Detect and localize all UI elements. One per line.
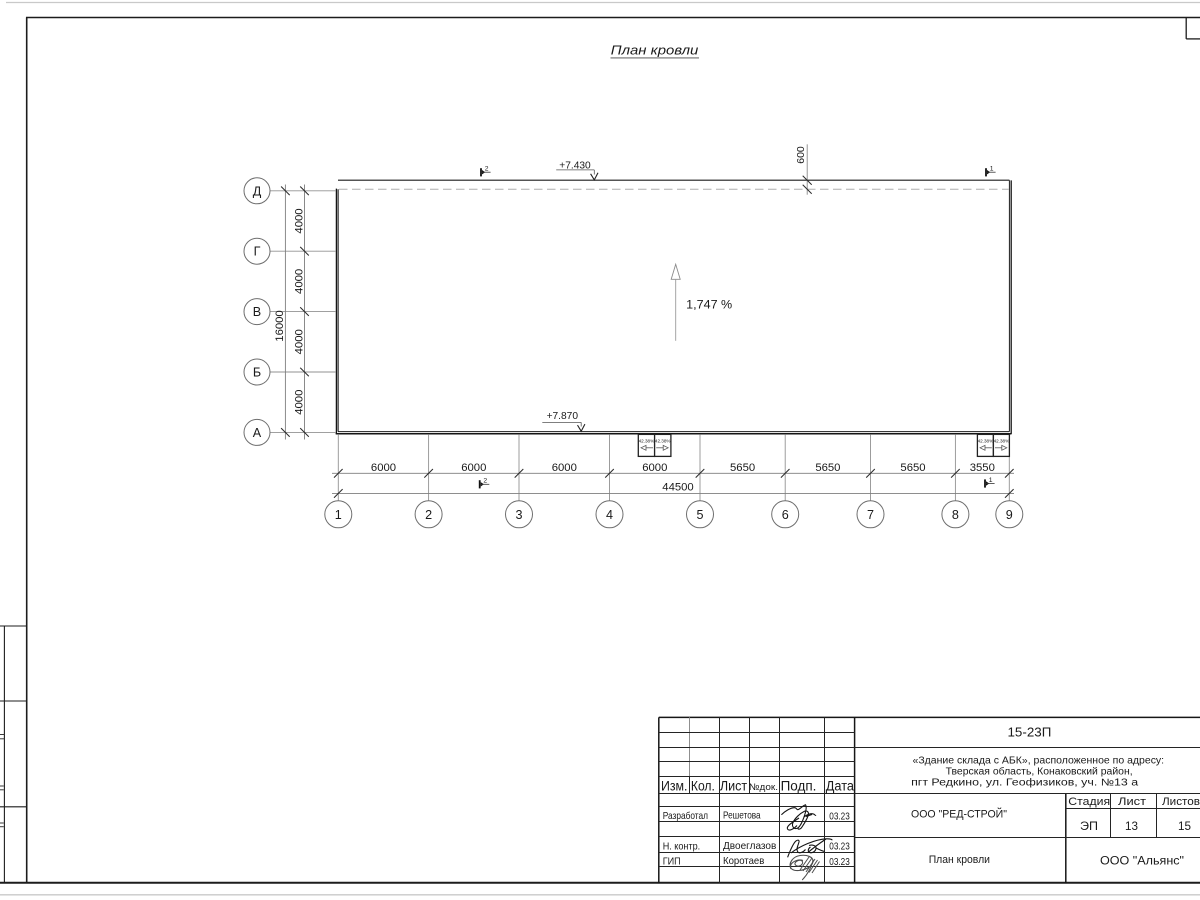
svg-text:В: В: [253, 305, 261, 319]
svg-text:16000: 16000: [274, 310, 286, 341]
svg-text:Решетова: Решетова: [723, 811, 761, 822]
svg-text:2: 2: [483, 478, 487, 485]
svg-text:пгт Редкино, ул. Геофизиков, у: пгт Редкино, ул. Геофизиков, уч. №13 а: [911, 778, 1139, 789]
svg-text:Лист: Лист: [720, 778, 747, 793]
svg-text:1: 1: [335, 508, 342, 522]
svg-text:Дата: Дата: [826, 778, 855, 793]
svg-text:5650: 5650: [900, 462, 925, 474]
svg-text:42.38%: 42.38%: [978, 439, 994, 444]
svg-text:Двоеглазов: Двоеглазов: [723, 841, 777, 852]
svg-text:2: 2: [485, 166, 489, 173]
svg-text:5: 5: [696, 508, 703, 522]
svg-text:42.38%: 42.38%: [639, 439, 655, 444]
svg-text:Лист: Лист: [1118, 796, 1146, 808]
svg-text:4000: 4000: [293, 390, 305, 415]
svg-text:Разработал: Разработал: [663, 810, 708, 822]
svg-text:Листов: Листов: [1162, 796, 1200, 808]
svg-text:42.38%: 42.38%: [994, 439, 1010, 444]
svg-text:4000: 4000: [293, 208, 305, 233]
svg-text:5650: 5650: [730, 462, 755, 474]
svg-text:6000: 6000: [371, 462, 396, 474]
svg-text:Тверская область, Конаковский: Тверская область, Конаковский район,: [946, 767, 1133, 778]
svg-text:План кровли: План кровли: [611, 42, 699, 57]
svg-text:ООО "РЕД-СТРОЙ": ООО "РЕД-СТРОЙ": [911, 807, 1007, 820]
svg-text:ООО "Альянс": ООО "Альянс": [1100, 853, 1184, 867]
svg-text:3: 3: [515, 508, 522, 522]
svg-text:15-23П: 15-23П: [1008, 725, 1052, 739]
svg-text:Г: Г: [254, 245, 261, 259]
svg-text:1: 1: [990, 166, 994, 173]
svg-text:А: А: [253, 426, 262, 440]
svg-text:ЭП: ЭП: [1080, 819, 1098, 833]
svg-text:42.38%: 42.38%: [655, 439, 671, 444]
svg-text:4: 4: [606, 508, 613, 522]
svg-text:2: 2: [425, 508, 432, 522]
svg-text:«Здание склада с АБК», располо: «Здание склада с АБК», расположенное по …: [913, 755, 1165, 766]
svg-text:3550: 3550: [970, 462, 995, 474]
svg-text:8: 8: [952, 508, 959, 522]
svg-text:600: 600: [795, 146, 807, 164]
svg-text:Изм.: Изм.: [661, 778, 688, 793]
svg-text:6: 6: [782, 508, 789, 522]
svg-text:4000: 4000: [293, 269, 305, 294]
svg-text:03.23: 03.23: [829, 812, 850, 823]
svg-text:9: 9: [1006, 508, 1013, 522]
svg-text:Б: Б: [253, 366, 261, 380]
svg-text:5650: 5650: [815, 462, 840, 474]
svg-text:1,747 %: 1,747 %: [686, 300, 732, 312]
svg-text:13: 13: [1125, 819, 1138, 833]
svg-text:6000: 6000: [642, 462, 667, 474]
svg-text:План кровли: План кровли: [929, 854, 990, 866]
svg-text:+7.870: +7.870: [547, 411, 579, 422]
svg-text:Стадия: Стадия: [1068, 796, 1110, 808]
svg-text:№док.: №док.: [749, 782, 778, 793]
svg-text:Подп.: Подп.: [781, 778, 817, 793]
svg-text:03.23: 03.23: [829, 857, 850, 868]
svg-text:15: 15: [1178, 819, 1191, 833]
svg-text:7: 7: [867, 508, 874, 522]
svg-text:Кол.: Кол.: [691, 778, 715, 793]
svg-text:Д: Д: [253, 184, 262, 198]
svg-text:03.23: 03.23: [829, 842, 850, 853]
svg-text:6000: 6000: [461, 462, 486, 474]
svg-text:Коротаев: Коротаев: [723, 856, 765, 867]
svg-text:6000: 6000: [552, 462, 577, 474]
svg-text:4000: 4000: [293, 329, 305, 354]
svg-text:ГИП: ГИП: [663, 856, 681, 867]
svg-text:44500: 44500: [662, 482, 693, 494]
svg-text:1: 1: [989, 477, 993, 484]
svg-text:Н. контр.: Н. контр.: [663, 841, 701, 852]
